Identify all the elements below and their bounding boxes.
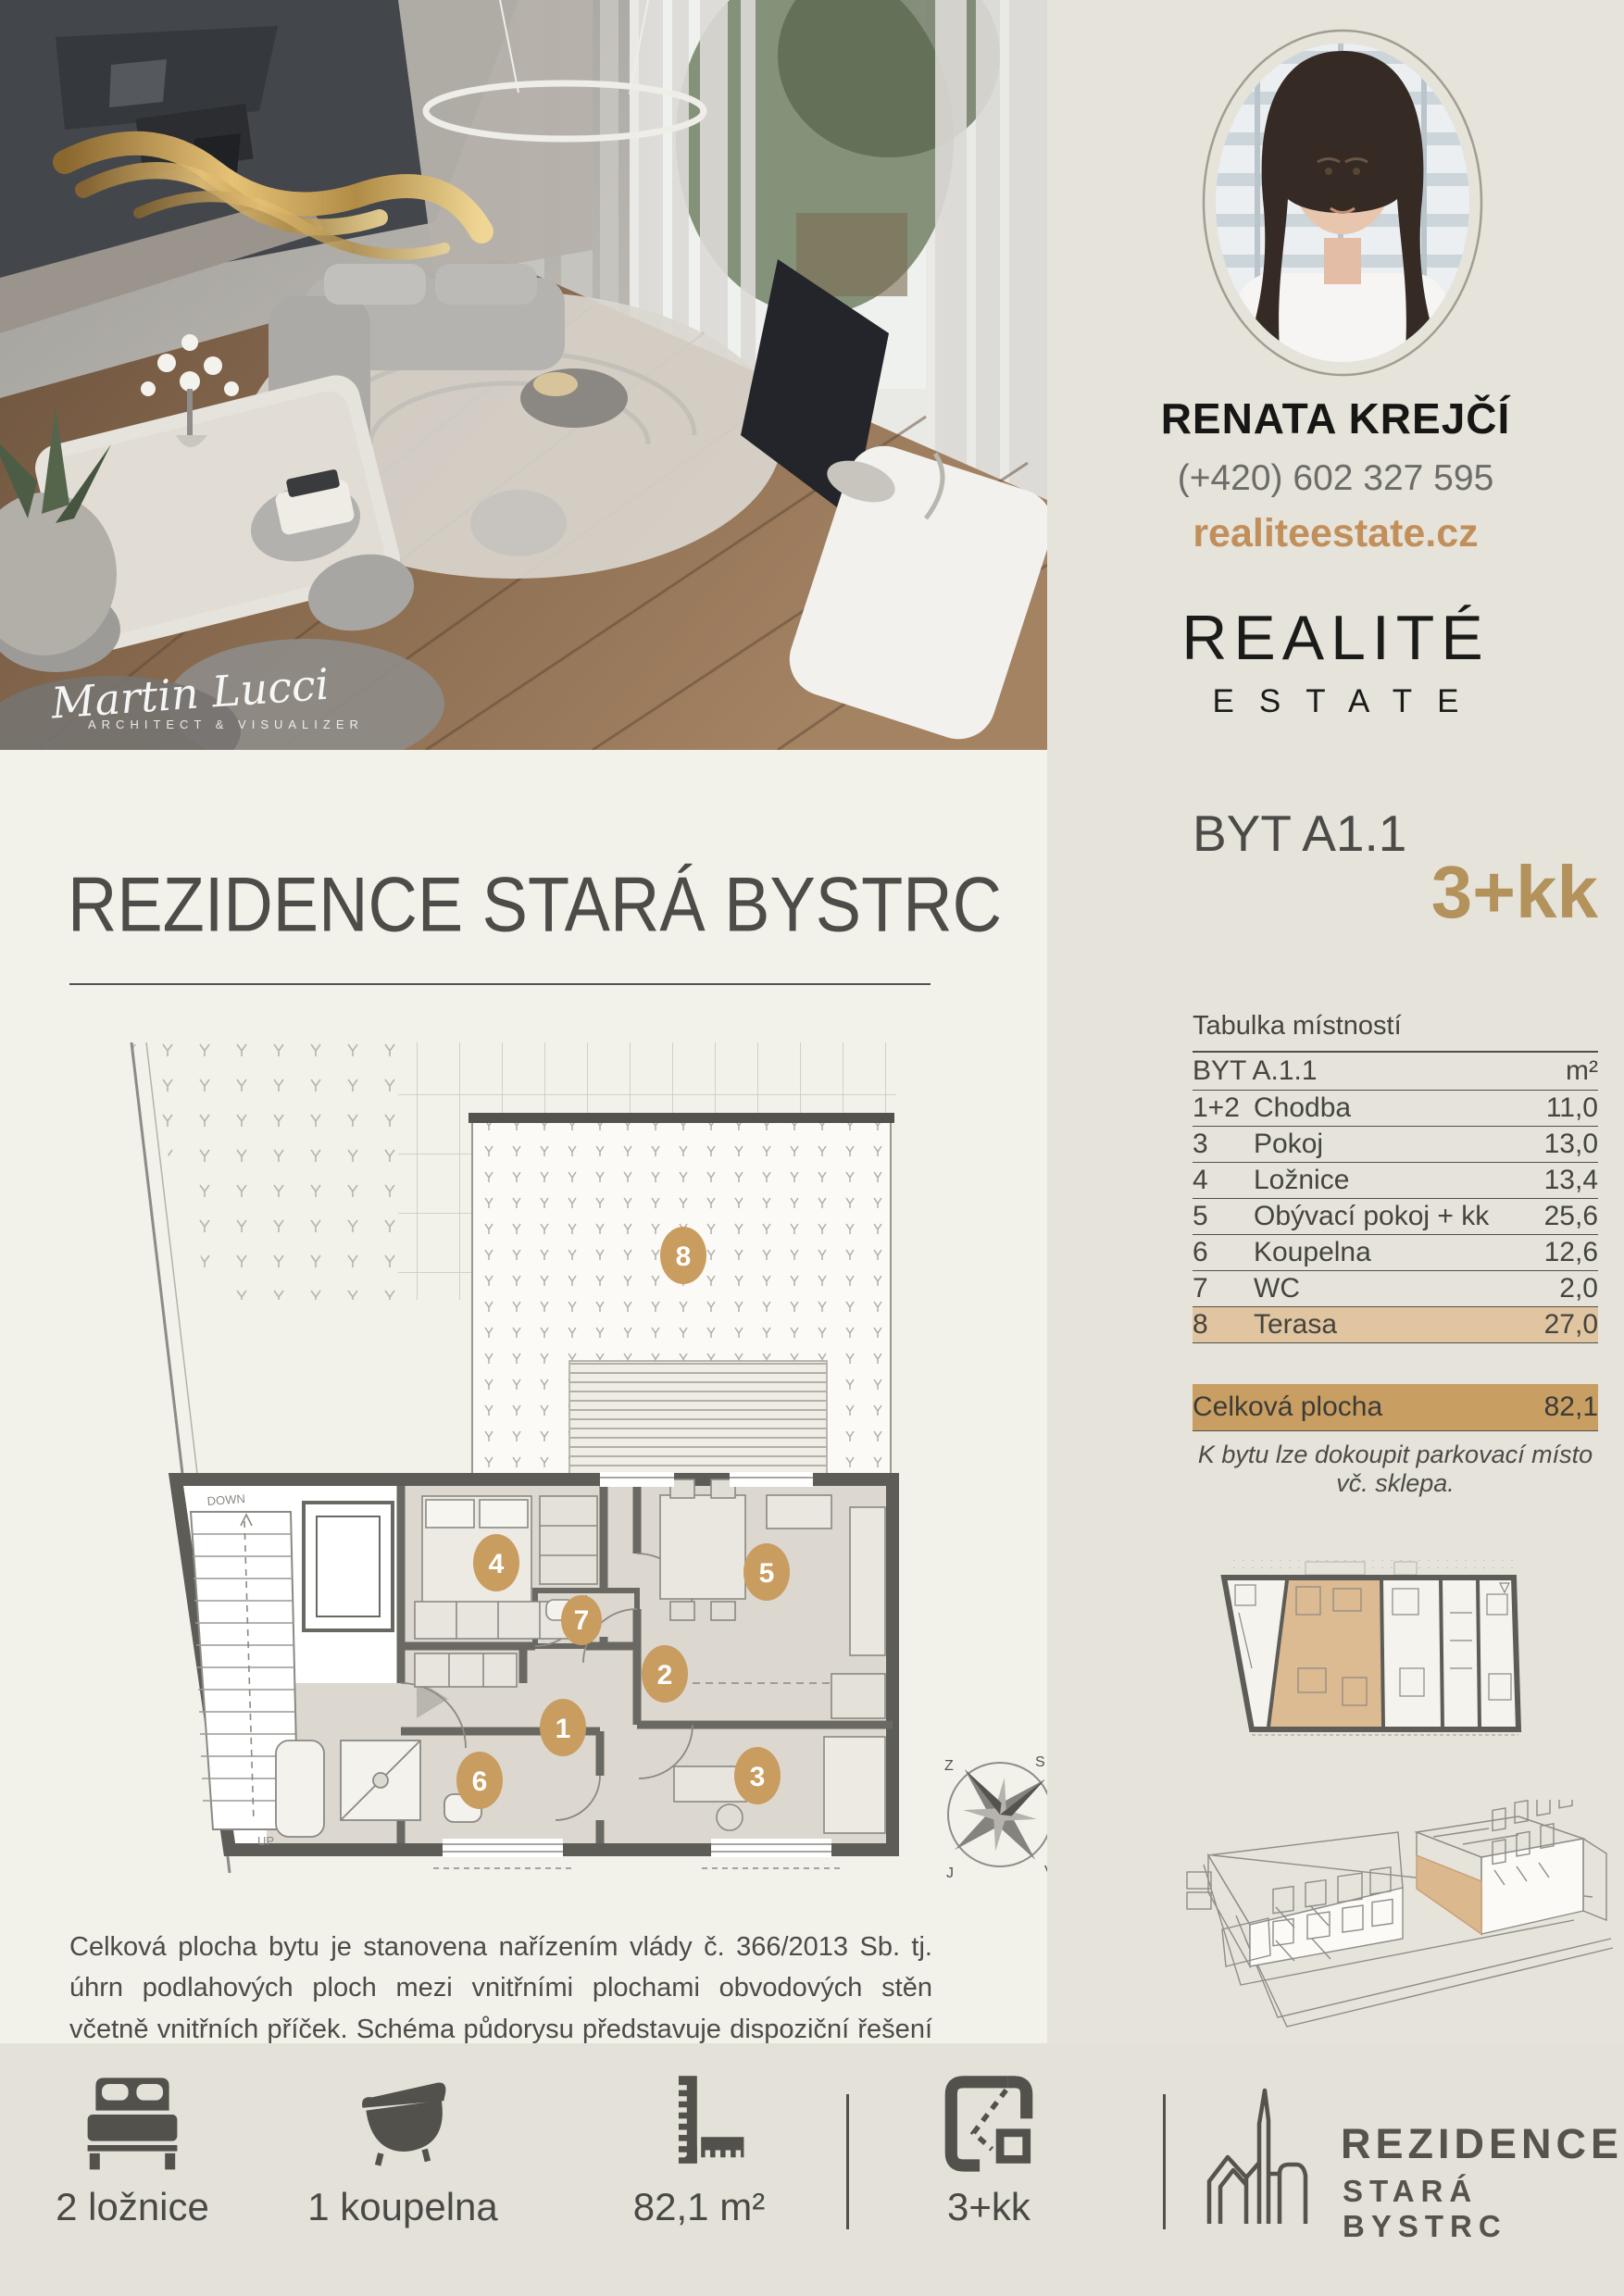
bath-icon bbox=[352, 2074, 454, 2176]
agent-phone: (+420) 602 327 595 bbox=[1047, 458, 1624, 499]
footer-divider bbox=[846, 2094, 849, 2229]
table-row: 5Obývací pokoj + kk25,6 bbox=[1193, 1199, 1598, 1235]
room-table: Tabulka místností BYT A.1.1 m² 1+2Chodba… bbox=[1193, 1011, 1598, 1431]
room-table-title: Tabulka místností bbox=[1193, 1011, 1598, 1051]
terrace bbox=[468, 1113, 894, 1479]
svg-text:J: J bbox=[946, 1865, 954, 1881]
svg-text:S: S bbox=[1035, 1754, 1045, 1770]
project-title: REZIDENCE STARÁ BYSTRC bbox=[68, 861, 956, 950]
svg-text:2: 2 bbox=[657, 1660, 673, 1691]
agent-website-link: realiteestate.cz bbox=[1047, 511, 1624, 556]
bed-icon bbox=[81, 2074, 183, 2176]
compass-icon: S V J Z bbox=[919, 1734, 1054, 1895]
table-total-row: Celková plocha 82,1 bbox=[1193, 1384, 1598, 1431]
ruler-icon bbox=[648, 2074, 750, 2176]
stat-layout: 3+kk bbox=[868, 2074, 1109, 2229]
svg-text:7: 7 bbox=[574, 1605, 590, 1636]
interior-photo bbox=[0, 0, 1047, 750]
unit-layout: 3+kk bbox=[1193, 850, 1598, 935]
table-row: 6Koupelna12,6 bbox=[1193, 1235, 1598, 1271]
svg-text:5: 5 bbox=[759, 1558, 775, 1589]
stat-bedrooms: 2 ložnice bbox=[12, 2074, 253, 2229]
table-row: 4Ložnice13,4 bbox=[1193, 1163, 1598, 1199]
stat-bathrooms: 1 koupelna bbox=[282, 2074, 523, 2229]
svg-text:Z: Z bbox=[944, 1758, 954, 1774]
svg-text:3: 3 bbox=[750, 1762, 766, 1792]
parking-note: K bytu lze dokoupit parkovací místo vč. … bbox=[1193, 1441, 1598, 1498]
table-row-highlight: 8Terasa27,0 bbox=[1193, 1307, 1598, 1343]
svg-text:8: 8 bbox=[676, 1242, 692, 1272]
title-divider bbox=[69, 983, 931, 985]
plan-icon bbox=[943, 2074, 1035, 2176]
stairs-up-label: UP bbox=[257, 1834, 274, 1848]
flyer-page: Martin Lucci ARCHITECT & VISUALIZER REZI… bbox=[0, 0, 1624, 2296]
agent-name: RENATA KREJČÍ bbox=[1047, 393, 1624, 443]
table-row: 3Pokoj13,0 bbox=[1193, 1127, 1598, 1163]
table-row: 1+2Chodba11,0 bbox=[1193, 1091, 1598, 1127]
table-row: 7WC2,0 bbox=[1193, 1271, 1598, 1307]
svg-text:1: 1 bbox=[556, 1714, 571, 1744]
project-logo-subname: STARÁ BYSTRC bbox=[1343, 2174, 1624, 2244]
svg-text:6: 6 bbox=[472, 1766, 488, 1797]
project-logo-icon bbox=[1200, 2085, 1330, 2233]
stat-area: 82,1 m² bbox=[579, 2074, 819, 2229]
stairs-down-label: DOWN bbox=[206, 1491, 245, 1508]
brand-wordmark: REALITÉ bbox=[1047, 602, 1624, 674]
footer-divider bbox=[1163, 2094, 1166, 2229]
project-logo-name: REZIDENCE bbox=[1341, 2120, 1623, 2168]
floor-plan: DOWN UP bbox=[119, 1035, 1054, 1901]
room-table-header: BYT A.1.1 m² bbox=[1193, 1053, 1598, 1091]
brand-wordmark-sub: ESTATE bbox=[1047, 683, 1624, 720]
building-3d-sketch bbox=[1185, 1800, 1617, 2042]
svg-text:4: 4 bbox=[489, 1549, 505, 1579]
agent-avatar bbox=[1199, 23, 1486, 382]
building-floor-overview bbox=[1194, 1557, 1607, 1809]
elevator bbox=[304, 1503, 393, 1630]
photo-watermark-subtitle: ARCHITECT & VISUALIZER bbox=[88, 717, 364, 731]
